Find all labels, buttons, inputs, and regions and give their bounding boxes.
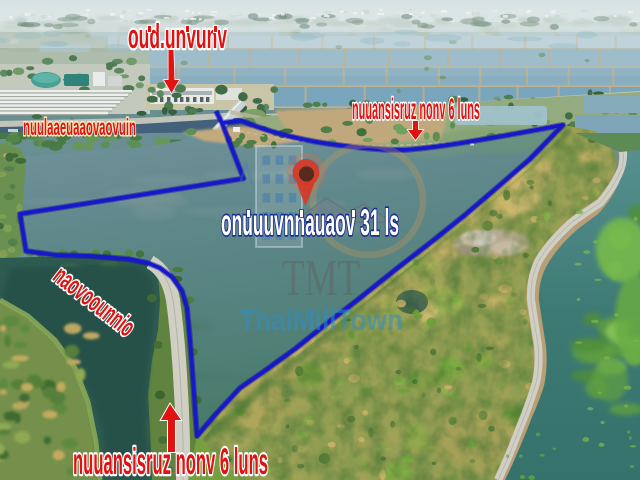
svg-text:TMT: TMT: [282, 250, 360, 307]
svg-text:onuuuvnnauaov 31 ls: onuuuvnnauaov 31 ls: [221, 202, 399, 243]
svg-text:nuulaaeuaaovaovuin: nuulaaeuaaovaovuin: [23, 114, 136, 140]
svg-text:oud.unvunv: oud.unvunv: [128, 18, 227, 56]
svg-text:ThaiMillTown: ThaiMillTown: [239, 304, 403, 337]
